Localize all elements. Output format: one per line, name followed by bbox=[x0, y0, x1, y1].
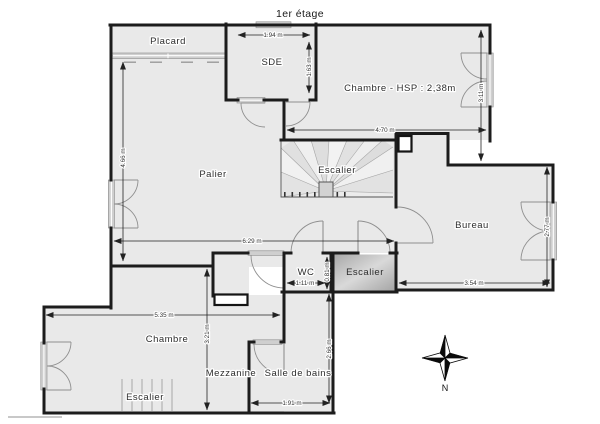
floor-plan-svg: 1.94 m 1.63 m 3.11 m 4.70 m 4.66 m 6.29 … bbox=[0, 0, 600, 424]
mezzanine-ledge bbox=[215, 295, 248, 306]
dim-bureau-width: 3.54 m bbox=[464, 280, 483, 287]
dim-bureau-depth: 2.77 m bbox=[544, 217, 551, 236]
label-escalier-mid: Escalier bbox=[346, 267, 384, 278]
dim-sde-width: 1.94 m bbox=[263, 32, 282, 39]
sde-bottom-window bbox=[237, 98, 265, 104]
chambre-bottom-french-window bbox=[41, 342, 47, 390]
floor-title: 1er étage bbox=[276, 8, 324, 20]
dim-bains-depth: 2.66 m bbox=[326, 339, 333, 358]
palier-french-window bbox=[108, 180, 114, 228]
dim-wc-depth: 0.81 m bbox=[324, 262, 331, 281]
floor-plan-page: 1.94 m 1.63 m 3.11 m 4.70 m 4.66 m 6.29 … bbox=[0, 0, 600, 424]
room-chambre-bottom-area bbox=[111, 266, 213, 311]
mezzanine-door-band bbox=[248, 251, 284, 256]
label-escalier-bottom: Escalier bbox=[126, 392, 164, 403]
dim-chambre-top-depth: 3.11 m bbox=[478, 84, 485, 103]
label-placard: Placard bbox=[150, 36, 186, 47]
dim-bains-width: 1.91 m bbox=[282, 400, 301, 407]
label-wc: WC bbox=[298, 267, 315, 278]
room-areas bbox=[44, 24, 553, 413]
chambre-top-window bbox=[487, 53, 493, 107]
dim-chambre-top-width: 4.70 m bbox=[375, 127, 394, 134]
label-escalier-spiral: Escalier bbox=[318, 165, 356, 176]
duct-niche bbox=[399, 136, 412, 152]
label-sde: SDE bbox=[261, 57, 282, 68]
stair-newel-post bbox=[319, 182, 333, 197]
label-chambre-bottom: Chambre bbox=[146, 334, 189, 345]
bains-door-band bbox=[253, 340, 282, 345]
dim-wc-width: 1.11 m bbox=[296, 280, 315, 287]
compass-rose: N bbox=[422, 335, 468, 393]
room-mezzanine-alcove-area bbox=[213, 253, 249, 295]
room-bureau-area bbox=[397, 134, 553, 290]
label-salle-de-bains: Salle de bains bbox=[265, 368, 332, 379]
compass-north-label: N bbox=[442, 383, 449, 393]
label-bureau: Bureau bbox=[455, 220, 489, 231]
dim-chambre-bottom-depth: 3.21 m bbox=[204, 324, 211, 343]
label-mezzanine: Mezzanine bbox=[206, 368, 256, 379]
dim-palier-depth: 4.66 m bbox=[120, 148, 127, 167]
dim-sde-depth: 1.63 m bbox=[306, 57, 313, 76]
fineprint-smudge bbox=[8, 416, 62, 418]
dim-chambre-bottom-width: 5.35 m bbox=[154, 312, 173, 319]
label-palier: Palier bbox=[199, 169, 226, 180]
dim-palier-width: 6.29 m bbox=[242, 238, 261, 245]
label-chambre-top: Chambre - HSP : 2,38m bbox=[344, 83, 456, 94]
